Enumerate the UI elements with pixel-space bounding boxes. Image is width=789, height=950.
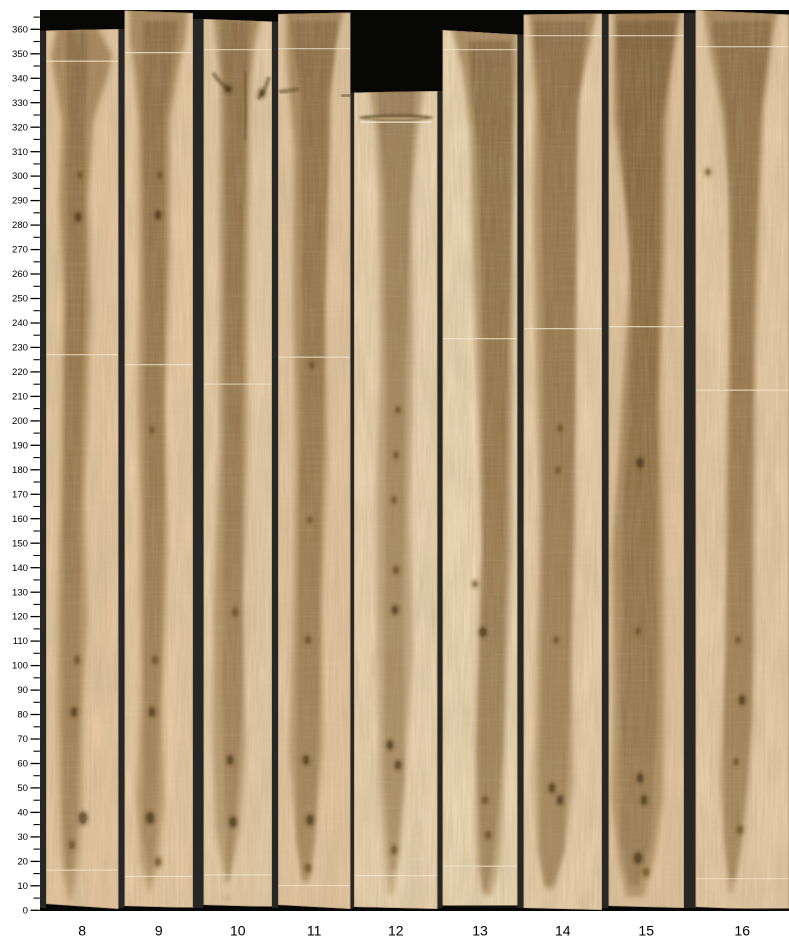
svg-text:70: 70: [17, 734, 28, 745]
svg-text:80: 80: [17, 710, 28, 721]
svg-text:320: 320: [12, 122, 28, 133]
svg-text:190: 190: [12, 440, 28, 451]
svg-text:200: 200: [12, 416, 28, 427]
svg-text:100: 100: [12, 661, 28, 672]
svg-text:110: 110: [13, 636, 28, 647]
svg-text:40: 40: [17, 808, 28, 819]
svg-text:10: 10: [17, 881, 28, 892]
svg-text:230: 230: [12, 343, 28, 354]
svg-text:270: 270: [12, 245, 28, 256]
svg-text:180: 180: [12, 465, 28, 476]
svg-text:210: 210: [12, 392, 28, 403]
svg-text:13: 13: [472, 923, 488, 939]
svg-text:12: 12: [388, 923, 404, 939]
svg-text:300: 300: [12, 171, 28, 182]
svg-text:150: 150: [12, 538, 28, 549]
svg-text:60: 60: [17, 759, 28, 770]
svg-text:30: 30: [17, 832, 28, 843]
svg-text:350: 350: [12, 49, 28, 60]
svg-text:260: 260: [12, 269, 28, 280]
svg-text:310: 310: [12, 147, 28, 158]
svg-text:15: 15: [638, 923, 654, 939]
svg-text:20: 20: [17, 857, 28, 868]
svg-text:140: 140: [12, 563, 28, 574]
svg-text:120: 120: [12, 612, 28, 623]
svg-text:330: 330: [12, 98, 28, 109]
svg-text:280: 280: [12, 220, 28, 231]
svg-text:8: 8: [78, 923, 86, 939]
svg-text:16: 16: [734, 923, 750, 939]
svg-text:11: 11: [307, 923, 322, 939]
svg-text:290: 290: [12, 196, 28, 207]
svg-text:250: 250: [12, 294, 28, 305]
svg-text:9: 9: [155, 923, 163, 939]
svg-text:50: 50: [17, 783, 28, 794]
svg-text:220: 220: [12, 367, 28, 378]
svg-text:14: 14: [555, 923, 571, 939]
svg-text:0: 0: [23, 905, 28, 916]
svg-text:340: 340: [12, 73, 28, 84]
svg-text:10: 10: [230, 923, 246, 939]
svg-text:130: 130: [12, 587, 28, 598]
svg-text:360: 360: [12, 24, 28, 35]
svg-text:240: 240: [12, 318, 28, 329]
svg-text:90: 90: [17, 685, 28, 696]
svg-text:160: 160: [12, 514, 28, 525]
svg-text:170: 170: [12, 489, 28, 500]
